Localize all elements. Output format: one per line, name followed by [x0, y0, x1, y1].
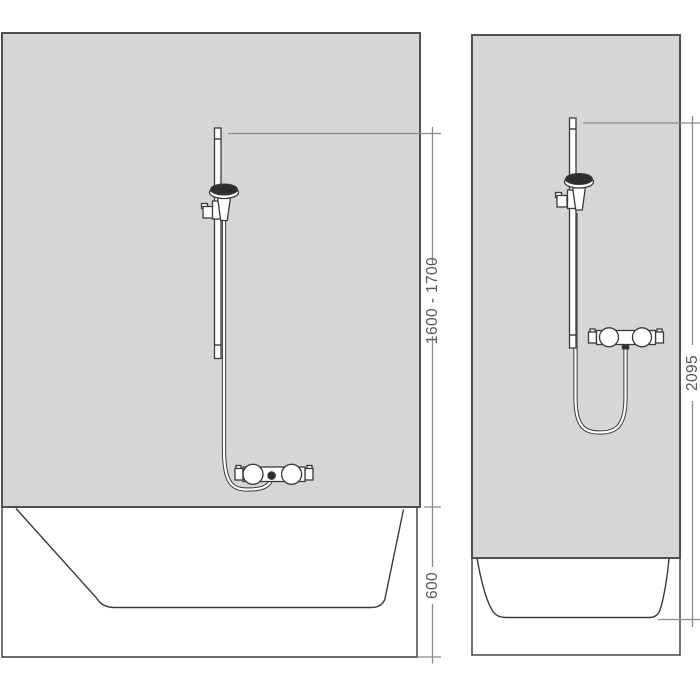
shower-tray: [477, 558, 669, 618]
mixer-hose-outlet: [268, 472, 276, 480]
mixer-temperature-handle: [600, 328, 619, 347]
left-panel-bathtub-installation: 1600 - 1700 600: [2, 33, 441, 664]
bathtub-outer-shell: [2, 507, 417, 657]
bathtub: [2, 507, 417, 657]
mixer-right-union: [305, 469, 313, 481]
holder-arm: [557, 196, 567, 208]
mixer-volume-handle: [633, 328, 652, 347]
mixer-left-union: [589, 332, 597, 343]
diagram-canvas: 1600 - 1700 600: [0, 0, 700, 700]
mixer-hose-outlet: [622, 345, 629, 350]
mixer-volume-handle: [282, 464, 302, 484]
hand-shower-spray-face: [566, 174, 593, 185]
hand-shower-spray-face: [211, 184, 238, 195]
shower-tray-inner-profile: [477, 558, 669, 618]
installation-diagram: 1600 - 1700 600: [0, 0, 700, 700]
mixer-right-union: [656, 332, 664, 343]
dimension-label-total-height: 2095: [684, 355, 700, 391]
mixer-left-union: [235, 469, 243, 481]
slide-bar-rail: [570, 118, 577, 348]
dimension-label-slide-bar-height: 1600 - 1700: [424, 257, 441, 344]
slide-bar: [215, 128, 222, 359]
tiled-wall: [2, 33, 420, 507]
slide-bar: [570, 118, 577, 348]
right-panel-shower-tray-installation: 2095: [472, 35, 700, 655]
dimension-label-bathtub-height: 600: [424, 572, 441, 599]
bathtub-inner-profile: [16, 509, 404, 608]
mixer-temperature-handle: [243, 464, 263, 484]
thermostatic-mixer: [235, 464, 313, 484]
slide-bar-rail: [215, 128, 222, 359]
dimension-bathtub-height: 600: [418, 572, 441, 664]
holder-arm: [203, 207, 213, 219]
